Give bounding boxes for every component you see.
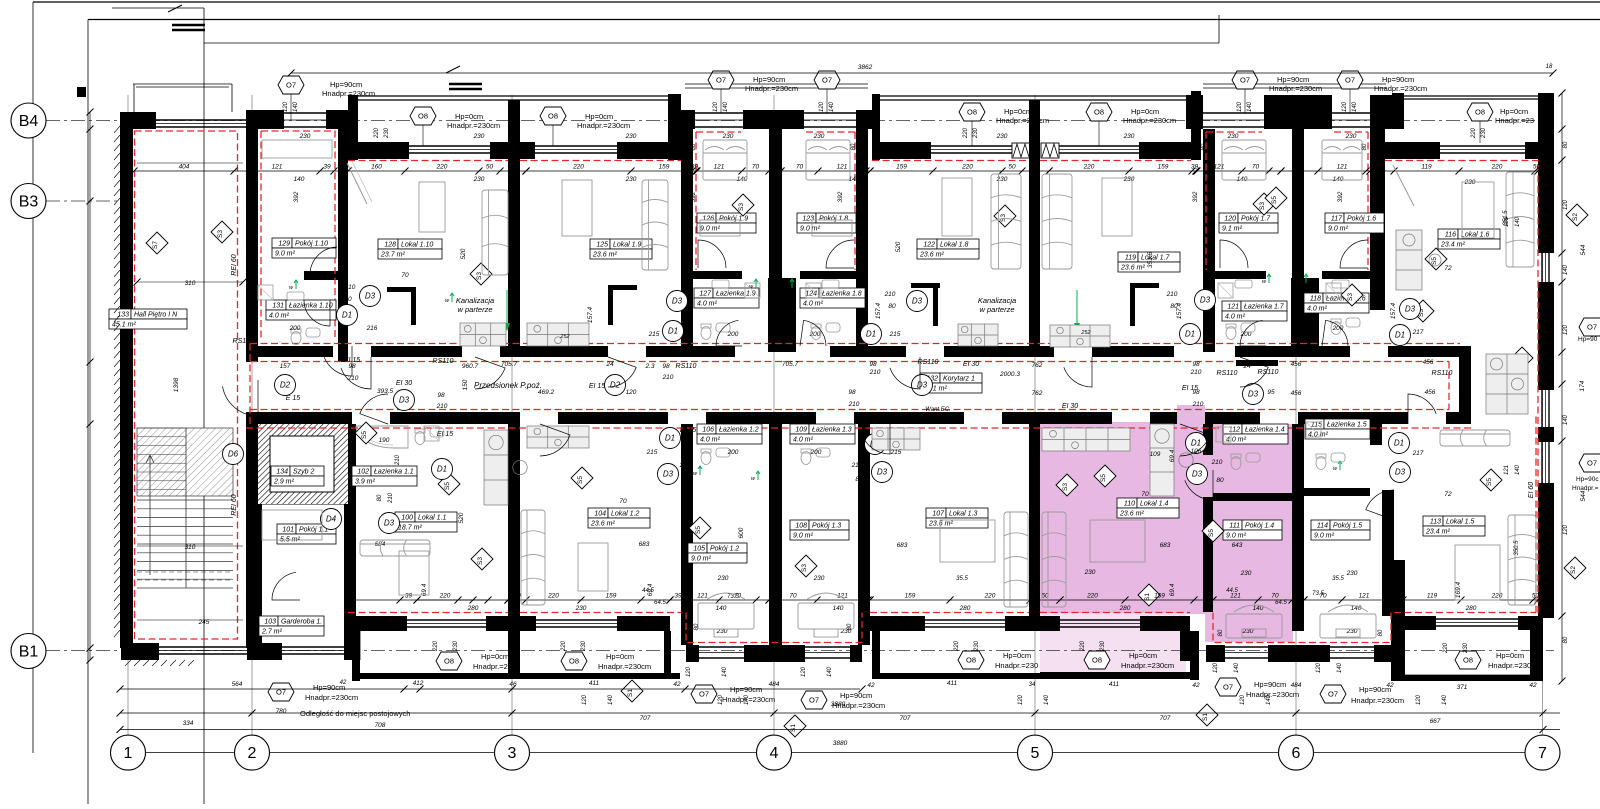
svg-text:210: 210 xyxy=(851,462,863,469)
svg-text:9.0 m²: 9.0 m² xyxy=(1226,533,1247,540)
svg-text:667: 667 xyxy=(1430,718,1441,725)
svg-text:220: 220 xyxy=(436,164,448,171)
svg-text:131: 131 xyxy=(272,303,284,310)
svg-text:220: 220 xyxy=(572,164,584,171)
svg-text:D2: D2 xyxy=(280,381,291,390)
svg-text:4.0 m²: 4.0 m² xyxy=(1307,306,1328,313)
svg-text:D3: D3 xyxy=(384,519,395,528)
svg-text:217: 217 xyxy=(1412,329,1424,336)
svg-text:220: 220 xyxy=(1080,640,1086,652)
svg-text:4.0 m²: 4.0 m² xyxy=(793,437,814,444)
svg-text:707: 707 xyxy=(1160,715,1171,722)
svg-text:120: 120 xyxy=(626,389,637,396)
svg-text:643: 643 xyxy=(1232,542,1243,549)
svg-text:EI 30: EI 30 xyxy=(396,380,412,387)
svg-text:24: 24 xyxy=(605,361,614,368)
svg-text:230: 230 xyxy=(996,133,1008,140)
svg-text:128.6: 128.6 xyxy=(125,381,132,398)
svg-text:Hall Piętro I N: Hall Piętro I N xyxy=(134,312,178,319)
svg-text:D3: D3 xyxy=(1192,470,1203,479)
svg-text:80: 80 xyxy=(1563,636,1569,643)
svg-text:Lokal 1.4: Lokal 1.4 xyxy=(1140,501,1169,508)
svg-text:D3: D3 xyxy=(1395,468,1406,477)
svg-text:D1: D1 xyxy=(665,434,675,443)
svg-text:4.0 m²: 4.0 m² xyxy=(700,437,721,444)
svg-text:D1: D1 xyxy=(342,311,352,320)
svg-text:39: 39 xyxy=(405,593,413,600)
svg-text:210: 210 xyxy=(1211,459,1223,466)
svg-text:159: 159 xyxy=(1158,164,1169,171)
svg-text:Odległość do miejsc postojowyc: Odległość do miejsc postojowych xyxy=(300,709,410,718)
svg-text:157.4: 157.4 xyxy=(1390,302,1397,319)
svg-text:120: 120 xyxy=(1563,199,1569,210)
svg-text:280: 280 xyxy=(467,605,479,612)
svg-text:600: 600 xyxy=(738,527,745,538)
svg-text:210: 210 xyxy=(869,369,881,376)
svg-text:140: 140 xyxy=(723,101,729,112)
svg-text:O8: O8 xyxy=(966,656,976,665)
svg-text:105: 105 xyxy=(693,546,705,553)
svg-text:B4: B4 xyxy=(19,113,39,130)
svg-text:780: 780 xyxy=(276,708,287,715)
svg-text:210: 210 xyxy=(848,401,860,408)
svg-text:169.4: 169.4 xyxy=(1455,581,1462,598)
svg-text:S1: S1 xyxy=(790,724,797,732)
svg-text:120: 120 xyxy=(283,101,289,112)
svg-text:350.5: 350.5 xyxy=(1514,540,1520,556)
svg-text:252: 252 xyxy=(559,334,569,340)
svg-text:70: 70 xyxy=(796,164,804,171)
svg-text:Hnadpr.=230cm: Hnadpr.=230cm xyxy=(745,84,798,93)
svg-text:O8: O8 xyxy=(548,112,558,121)
svg-text:D3: D3 xyxy=(1200,296,1211,305)
svg-text:230: 230 xyxy=(996,176,1008,183)
svg-text:140: 140 xyxy=(1247,101,1253,112)
svg-text:119: 119 xyxy=(1125,255,1136,262)
svg-text:220: 220 xyxy=(1443,642,1449,654)
svg-text:Łazienka 1.9: Łazienka 1.9 xyxy=(716,291,756,298)
svg-text:95: 95 xyxy=(1267,389,1275,396)
svg-text:S5: S5 xyxy=(1431,257,1438,265)
svg-text:Korytarz 1: Korytarz 1 xyxy=(943,376,975,383)
svg-text:122: 122 xyxy=(923,242,935,249)
svg-text:140: 140 xyxy=(1237,176,1248,183)
svg-text:762: 762 xyxy=(1032,390,1043,397)
svg-text:230: 230 xyxy=(1100,640,1106,652)
svg-text:9.0 m²: 9.0 m² xyxy=(1314,533,1335,540)
svg-text:120: 120 xyxy=(1563,324,1569,335)
svg-text:Lokal 1.6: Lokal 1.6 xyxy=(1461,232,1490,239)
svg-text:80: 80 xyxy=(1563,141,1569,148)
svg-text:80: 80 xyxy=(691,143,697,150)
svg-text:230: 230 xyxy=(299,133,311,140)
svg-text:69.4: 69.4 xyxy=(1169,583,1176,596)
svg-text:Hnadpr.=230cm: Hnadpr.=230cm xyxy=(305,693,358,702)
svg-text:157.4: 157.4 xyxy=(875,302,882,319)
svg-text:D1: D1 xyxy=(1394,439,1404,448)
svg-text:S5: S5 xyxy=(1100,474,1107,482)
svg-text:Kanalizacja: Kanalizacja xyxy=(456,296,494,305)
svg-text:Przedsionek P.poż.: Przedsionek P.poż. xyxy=(474,381,542,390)
svg-text:Hnadpr.=230cm: Hnadpr.=230cm xyxy=(1121,661,1174,670)
svg-text:220: 220 xyxy=(1086,593,1098,600)
svg-text:23.6 m²: 23.6 m² xyxy=(592,252,617,259)
svg-text:w parterze: w parterze xyxy=(979,305,1014,314)
svg-text:4.0 m²: 4.0 m² xyxy=(1225,314,1246,321)
svg-text:Pokój 1.5: Pokój 1.5 xyxy=(1333,523,1362,530)
svg-text:EI 60: EI 60 xyxy=(1528,482,1535,498)
svg-text:120: 120 xyxy=(582,694,588,705)
svg-text:50: 50 xyxy=(1533,164,1541,171)
svg-text:S3: S3 xyxy=(217,230,224,238)
svg-text:98: 98 xyxy=(1192,361,1200,368)
svg-text:Pokój 1.2: Pokój 1.2 xyxy=(710,546,739,553)
svg-text:98: 98 xyxy=(848,389,856,396)
svg-text:140: 140 xyxy=(608,694,614,705)
svg-text:220: 220 xyxy=(963,127,969,139)
svg-text:42: 42 xyxy=(1386,682,1394,689)
svg-text:Pokój 1.9: Pokój 1.9 xyxy=(719,216,748,223)
svg-text:200: 200 xyxy=(1332,325,1344,332)
svg-text:Want.EC.: Want.EC. xyxy=(925,407,951,413)
svg-text:80: 80 xyxy=(847,623,853,630)
svg-text:220: 220 xyxy=(1491,164,1503,171)
svg-text:98: 98 xyxy=(437,392,445,399)
svg-text:Łazienka 1.5: Łazienka 1.5 xyxy=(1327,422,1367,429)
svg-text:120: 120 xyxy=(1237,101,1243,112)
svg-text:230: 230 xyxy=(1346,570,1358,577)
svg-text:44.5: 44.5 xyxy=(1226,588,1238,594)
svg-text:119: 119 xyxy=(1421,164,1432,171)
svg-text:50: 50 xyxy=(1008,164,1016,171)
svg-text:125: 125 xyxy=(596,242,608,249)
svg-text:544: 544 xyxy=(1580,244,1587,255)
svg-text:120: 120 xyxy=(1316,662,1322,673)
svg-text:404: 404 xyxy=(179,164,190,171)
svg-text:O7: O7 xyxy=(1328,690,1338,699)
svg-text:D3: D3 xyxy=(877,468,888,477)
svg-text:220: 220 xyxy=(954,640,960,652)
svg-text:23.6 m²: 23.6 m² xyxy=(1119,511,1144,518)
svg-text:220: 220 xyxy=(1491,593,1503,600)
svg-text:6: 6 xyxy=(1292,745,1301,762)
svg-text:310: 310 xyxy=(185,280,196,287)
svg-text:Hp=90: Hp=90 xyxy=(1578,336,1598,343)
svg-text:34: 34 xyxy=(1029,682,1036,688)
svg-text:220: 220 xyxy=(439,593,451,600)
svg-text:121: 121 xyxy=(1227,304,1239,311)
svg-text:230: 230 xyxy=(1123,133,1135,140)
svg-text:23.6 m²: 23.6 m² xyxy=(919,252,944,259)
svg-text:S7: S7 xyxy=(152,241,159,249)
svg-text:RS110: RS110 xyxy=(233,338,254,345)
svg-text:Hnadpr.=230cm: Hnadpr.=230cm xyxy=(1269,84,1322,93)
svg-text:217: 217 xyxy=(1412,450,1424,457)
svg-text:334: 334 xyxy=(183,720,194,727)
svg-text:220: 220 xyxy=(547,593,559,600)
svg-text:50: 50 xyxy=(486,164,494,171)
svg-text:683: 683 xyxy=(897,542,908,549)
svg-text:D6: D6 xyxy=(228,450,239,459)
svg-text:174: 174 xyxy=(1579,380,1586,391)
svg-text:456: 456 xyxy=(1291,361,1302,368)
svg-text:280: 280 xyxy=(1119,605,1131,612)
svg-text:45.1 m²: 45.1 m² xyxy=(112,322,136,329)
svg-text:210: 210 xyxy=(388,492,394,504)
svg-text:215: 215 xyxy=(890,449,902,456)
svg-text:120: 120 xyxy=(801,666,807,677)
svg-text:140: 140 xyxy=(833,605,844,612)
svg-text:Hp=0cm: Hp=0cm xyxy=(1129,651,1157,660)
svg-text:102: 102 xyxy=(357,469,369,476)
svg-text:456: 456 xyxy=(1425,389,1436,396)
svg-text:3880: 3880 xyxy=(833,740,848,747)
svg-text:Garderoba 1.: Garderoba 1. xyxy=(281,619,322,626)
svg-text:Hp=0cm: Hp=0cm xyxy=(1131,107,1159,116)
svg-text:46: 46 xyxy=(509,681,517,688)
svg-text:EI 15: EI 15 xyxy=(680,427,696,434)
svg-text:Lokal 1.2: Lokal 1.2 xyxy=(611,511,640,518)
svg-text:Hp=0cm: Hp=0cm xyxy=(481,652,509,661)
svg-text:70: 70 xyxy=(619,498,627,505)
svg-text:O7: O7 xyxy=(286,81,296,90)
svg-text:1398: 1398 xyxy=(173,377,180,392)
svg-text:RS110: RS110 xyxy=(1217,370,1238,377)
svg-text:120: 120 xyxy=(1240,694,1246,705)
svg-text:23.4 m²: 23.4 m² xyxy=(1440,242,1465,249)
svg-text:S2: S2 xyxy=(1570,566,1577,574)
svg-text:O8: O8 xyxy=(967,108,977,117)
svg-text:157: 157 xyxy=(280,363,291,370)
svg-text:Hp=0cm: Hp=0cm xyxy=(585,112,613,121)
svg-text:RS110: RS110 xyxy=(1258,369,1279,376)
svg-text:215: 215 xyxy=(646,449,658,456)
svg-text:72: 72 xyxy=(1444,491,1452,498)
svg-text:80: 80 xyxy=(344,296,352,303)
svg-text:683: 683 xyxy=(639,541,650,548)
svg-text:128: 128 xyxy=(384,242,396,249)
svg-text:120: 120 xyxy=(819,101,825,112)
svg-text:220: 220 xyxy=(433,640,439,652)
svg-text:O7: O7 xyxy=(1345,76,1355,85)
svg-text:D1: D1 xyxy=(437,465,447,474)
svg-text:230: 230 xyxy=(1227,133,1239,140)
svg-text:371: 371 xyxy=(1457,684,1468,691)
svg-text:411: 411 xyxy=(589,680,600,687)
svg-text:Pokój 1.10: Pokój 1.10 xyxy=(295,241,328,248)
svg-text:Hnadpr.=230cm: Hnadpr.=230cm xyxy=(1246,690,1299,699)
svg-text:98: 98 xyxy=(1192,389,1200,396)
svg-text:9.0 m²: 9.0 m² xyxy=(800,226,821,233)
svg-text:683: 683 xyxy=(1160,542,1171,549)
svg-text:70: 70 xyxy=(752,164,760,171)
svg-text:80: 80 xyxy=(1201,143,1207,150)
svg-text:69.4: 69.4 xyxy=(1169,449,1176,462)
svg-text:120: 120 xyxy=(718,694,724,705)
svg-text:210: 210 xyxy=(884,291,896,298)
svg-text:230: 230 xyxy=(473,176,485,183)
svg-text:Hp=90cm: Hp=90cm xyxy=(1277,75,1309,84)
svg-text:Hp=90cm: Hp=90cm xyxy=(753,75,785,84)
svg-text:80: 80 xyxy=(1378,629,1384,636)
svg-text:9.0 m²: 9.0 m² xyxy=(793,533,814,540)
svg-text:159: 159 xyxy=(896,164,907,171)
svg-text:RS110: RS110 xyxy=(433,358,454,365)
svg-text:140: 140 xyxy=(1234,662,1240,673)
svg-text:9.0 m²: 9.0 m² xyxy=(275,251,296,258)
svg-text:5: 5 xyxy=(1031,745,1040,762)
svg-text:210: 210 xyxy=(1166,291,1178,298)
svg-text:Hp=90cm: Hp=90cm xyxy=(1382,75,1414,84)
svg-text:210: 210 xyxy=(436,403,448,410)
svg-text:3880: 3880 xyxy=(831,701,846,708)
svg-text:230: 230 xyxy=(1481,127,1487,139)
svg-text:140: 140 xyxy=(1563,264,1569,275)
svg-text:O7: O7 xyxy=(822,76,832,85)
svg-text:D1: D1 xyxy=(866,330,876,339)
svg-text:411: 411 xyxy=(947,680,958,687)
svg-text:S5: S5 xyxy=(1208,529,1215,537)
svg-text:220: 220 xyxy=(961,164,973,171)
svg-text:230: 230 xyxy=(473,133,485,140)
svg-text:O8: O8 xyxy=(569,657,579,666)
svg-text:110: 110 xyxy=(1124,501,1135,508)
svg-text:80: 80 xyxy=(855,476,863,483)
svg-text:121: 121 xyxy=(272,164,283,171)
svg-text:140: 140 xyxy=(1563,414,1569,425)
svg-text:Pokój 1.8: Pokój 1.8 xyxy=(819,216,848,223)
svg-text:230: 230 xyxy=(1240,570,1252,577)
svg-text:O7: O7 xyxy=(1223,683,1233,692)
svg-text:Hp=90cm: Hp=90cm xyxy=(840,691,872,700)
svg-text:80: 80 xyxy=(851,143,857,150)
svg-text:126: 126 xyxy=(702,216,714,223)
svg-text:S5: S5 xyxy=(695,526,702,534)
svg-text:707: 707 xyxy=(640,715,651,722)
svg-text:w parterze: w parterze xyxy=(457,305,492,314)
svg-text:121: 121 xyxy=(1337,164,1348,171)
svg-text:D1: D1 xyxy=(1191,439,1201,448)
svg-text:Hnadpr.=23: Hnadpr.=23 xyxy=(1495,116,1534,125)
svg-text:Pokój 1.4: Pokój 1.4 xyxy=(1245,523,1274,530)
svg-text:O8: O8 xyxy=(1094,108,1104,117)
svg-text:140: 140 xyxy=(1333,176,1344,183)
svg-text:Łazienka 1.8: Łazienka 1.8 xyxy=(822,291,862,298)
svg-text:520: 520 xyxy=(460,248,467,259)
svg-text:762: 762 xyxy=(1032,362,1043,369)
svg-text:S5: S5 xyxy=(1271,196,1278,204)
svg-text:Łazienka 1.2: Łazienka 1.2 xyxy=(719,427,759,434)
svg-text:252: 252 xyxy=(1080,330,1090,336)
svg-text:4.0 m²: 4.0 m² xyxy=(1308,432,1329,439)
svg-text:4: 4 xyxy=(770,745,779,762)
svg-text:80: 80 xyxy=(1216,477,1224,484)
svg-text:112: 112 xyxy=(1229,427,1240,434)
svg-text:Lokal 1.10: Lokal 1.10 xyxy=(401,242,433,249)
svg-text:120: 120 xyxy=(1342,101,1348,112)
svg-text:230: 230 xyxy=(625,176,637,183)
svg-text:140: 140 xyxy=(1352,101,1358,112)
svg-text:23.6 m²: 23.6 m² xyxy=(1120,265,1145,272)
svg-text:159: 159 xyxy=(606,593,617,600)
svg-text:4: 4 xyxy=(1395,593,1399,600)
svg-text:Hnadpr.=230cm: Hnadpr.=230cm xyxy=(1488,661,1541,670)
svg-text:D4: D4 xyxy=(326,515,337,524)
svg-text:121: 121 xyxy=(1359,593,1370,600)
svg-text:80: 80 xyxy=(1218,629,1224,636)
svg-text:2.3: 2.3 xyxy=(644,363,654,370)
svg-text:140: 140 xyxy=(1044,694,1050,705)
svg-text:120: 120 xyxy=(1563,524,1569,535)
svg-text:O7: O7 xyxy=(1240,76,1250,85)
svg-text:392: 392 xyxy=(293,191,300,202)
svg-text:150: 150 xyxy=(462,379,469,390)
svg-text:Hp=90c: Hp=90c xyxy=(1576,476,1599,483)
svg-text:Kanalizacja: Kanalizacja xyxy=(978,296,1016,305)
svg-text:7: 7 xyxy=(1538,745,1547,762)
svg-text:705.7: 705.7 xyxy=(782,361,799,368)
svg-text:351.5: 351.5 xyxy=(1147,251,1154,268)
svg-text:9.1 m²: 9.1 m² xyxy=(1222,226,1243,233)
svg-text:210: 210 xyxy=(1190,369,1202,376)
svg-text:Hp=0cm: Hp=0cm xyxy=(606,652,634,661)
svg-text:140: 140 xyxy=(1337,662,1343,673)
svg-text:200: 200 xyxy=(289,325,301,332)
svg-text:280: 280 xyxy=(959,605,971,612)
svg-text:280: 280 xyxy=(1465,605,1477,612)
svg-text:73.5: 73.5 xyxy=(1312,591,1324,597)
svg-text:Łazienka 1.4: Łazienka 1.4 xyxy=(1245,427,1285,434)
svg-text:50: 50 xyxy=(1032,164,1040,171)
svg-text:469.2: 469.2 xyxy=(538,389,555,396)
svg-text:80: 80 xyxy=(377,494,383,501)
svg-text:109: 109 xyxy=(795,427,807,434)
svg-text:230: 230 xyxy=(813,133,825,140)
svg-text:B1: B1 xyxy=(19,644,39,661)
svg-text:D3: D3 xyxy=(912,297,923,306)
svg-text:Hnadpr.=230cm: Hnadpr.=230cm xyxy=(1123,116,1176,125)
svg-text:S3: S3 xyxy=(738,203,745,211)
svg-text:69.4: 69.4 xyxy=(421,583,428,596)
svg-text:Hp=0cm: Hp=0cm xyxy=(1003,651,1031,660)
svg-text:215: 215 xyxy=(648,331,660,338)
svg-text:1: 1 xyxy=(124,745,133,762)
svg-text:160: 160 xyxy=(371,164,382,171)
svg-text:140: 140 xyxy=(827,666,833,677)
svg-text:111: 111 xyxy=(1229,523,1240,530)
svg-text:Pokój 1.1: Pokój 1.1 xyxy=(299,527,328,534)
svg-text:230: 230 xyxy=(722,133,734,140)
svg-text:Łazienka 1.1: Łazienka 1.1 xyxy=(374,469,414,476)
svg-text:2.7 m²: 2.7 m² xyxy=(261,629,283,636)
svg-text:Łazienka 1.10: Łazienka 1.10 xyxy=(289,303,333,310)
svg-text:127: 127 xyxy=(699,291,712,298)
svg-text:230: 230 xyxy=(813,575,825,582)
svg-text:230: 230 xyxy=(384,127,390,139)
svg-text:D3: D3 xyxy=(399,396,410,405)
svg-text:S5: S5 xyxy=(577,476,584,484)
svg-text:Pokój 1.3: Pokój 1.3 xyxy=(812,523,841,530)
svg-text:114: 114 xyxy=(1317,523,1328,530)
svg-text:3.9 m²: 3.9 m² xyxy=(355,479,376,486)
svg-text:120: 120 xyxy=(1416,694,1422,705)
svg-text:D3: D3 xyxy=(672,297,683,306)
svg-text:D1: D1 xyxy=(1395,331,1405,340)
svg-text:70: 70 xyxy=(1141,491,1149,498)
svg-text:O7: O7 xyxy=(716,76,726,85)
svg-text:140: 140 xyxy=(1515,216,1521,227)
svg-text:230: 230 xyxy=(575,605,587,612)
